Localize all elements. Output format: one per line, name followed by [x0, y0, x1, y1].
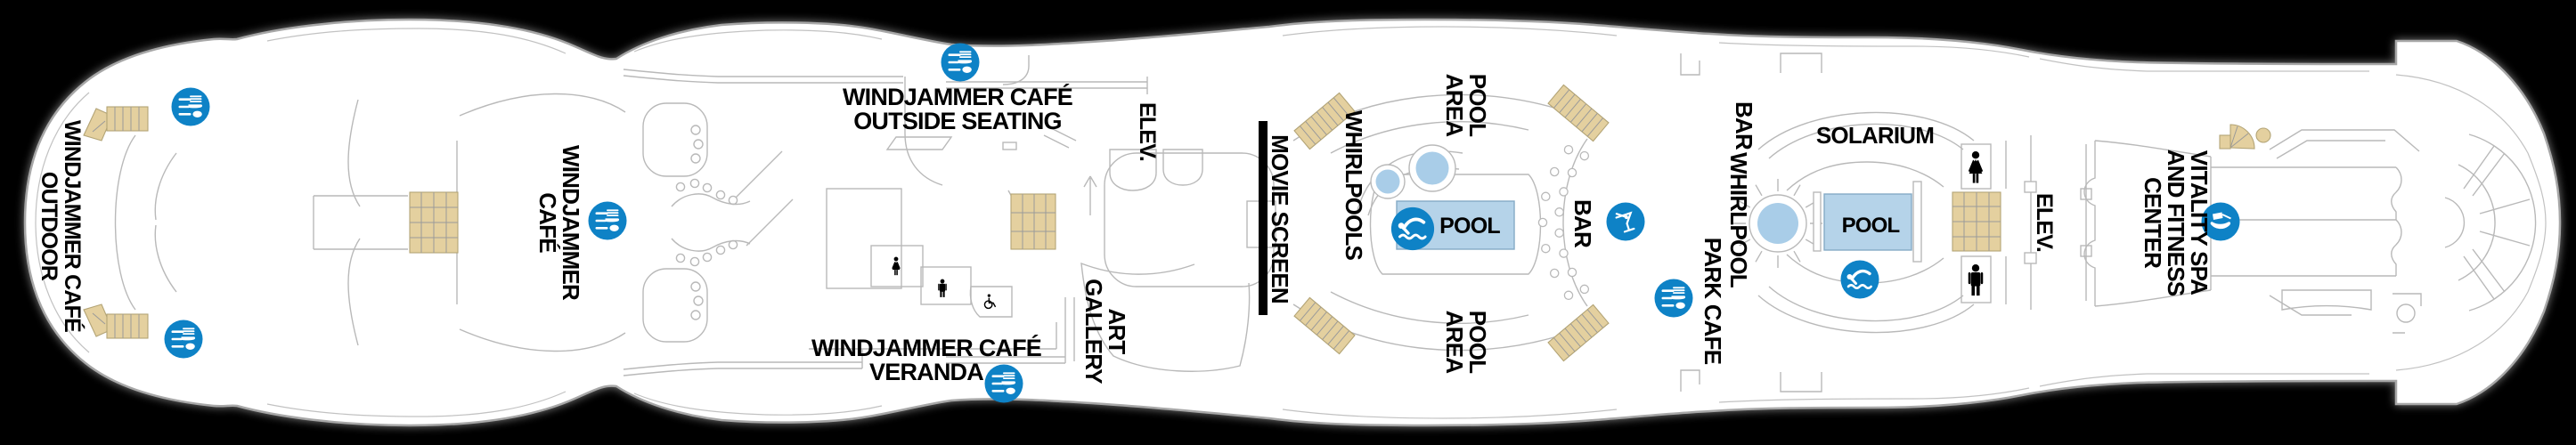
outside-seating-label: WINDJAMMER CAFÉ OUTSIDE SEATING	[843, 83, 1072, 134]
svg-text:ELEV.: ELEV.	[1135, 102, 1160, 161]
svg-text:OUTSIDE SEATING: OUTSIDE SEATING	[853, 108, 1062, 134]
bar-icon[interactable]	[1607, 203, 1645, 241]
movie-screen-bar	[1259, 121, 1268, 315]
svg-text:OUTDOOR: OUTDOOR	[37, 172, 61, 281]
dining-icon[interactable]	[165, 320, 203, 359]
whirlpool-aft-large	[1409, 145, 1455, 191]
dining-icon[interactable]	[985, 365, 1023, 403]
svg-text:AREA: AREA	[1441, 311, 1468, 374]
svg-text:MOVIE SCREEN: MOVIE SCREEN	[1267, 134, 1293, 303]
svg-text:BAR: BAR	[1731, 101, 1757, 150]
pool-icon[interactable]	[1391, 207, 1434, 250]
svg-text:PARK CAFE: PARK CAFE	[1700, 238, 1726, 365]
main-pool-label: POOL	[1439, 214, 1500, 239]
solarium-whirlpool-circle	[1749, 195, 1806, 252]
dining-icon[interactable]	[172, 88, 210, 126]
elev-mid-label: ELEV.	[1135, 102, 1160, 161]
pool-area-top-label: POOL AREA	[1441, 74, 1491, 137]
deck-plan: WINDJAMMER CAFÉ OUTDOOR WINDJAMMER CAFÉ …	[0, 0, 2576, 445]
pool-icon[interactable]	[1841, 261, 1879, 299]
svg-text:WHIRLPOOLS: WHIRLPOOLS	[1341, 110, 1367, 261]
elev-forward-label: ELEV.	[2032, 193, 2057, 252]
solarium-label: SOLARIUM	[1816, 122, 1934, 149]
svg-text:CAFÉ: CAFÉ	[534, 192, 561, 253]
solarium-bar-label: BAR	[1731, 101, 1757, 150]
svg-text:CENTER: CENTER	[2140, 177, 2166, 269]
dining-icon[interactable]	[942, 44, 980, 82]
park-cafe-label: PARK CAFE	[1700, 238, 1726, 365]
svg-text:BAR: BAR	[1569, 199, 1596, 248]
svg-text:WINDJAMMER CAFÉ: WINDJAMMER CAFÉ	[811, 334, 1041, 361]
svg-text:ELEV.: ELEV.	[2032, 193, 2057, 252]
whirlpool-aft-small	[1371, 165, 1405, 198]
stairs-veranda[interactable]	[1011, 194, 1056, 249]
movie-screen-label: MOVIE SCREEN	[1267, 134, 1293, 303]
svg-text:GALLERY: GALLERY	[1080, 279, 1107, 384]
whirlpools-label: WHIRLPOOLS	[1341, 110, 1367, 261]
svg-text:VERANDA: VERANDA	[869, 359, 983, 385]
pool-bar-label: BAR	[1569, 199, 1596, 248]
solarium-pool-label: POOL	[1842, 214, 1900, 238]
dining-icon[interactable]	[1655, 279, 1693, 318]
stairs-windjammer[interactable]	[410, 192, 458, 253]
stairs-solarium[interactable]	[1952, 192, 2001, 251]
svg-text:AREA: AREA	[1441, 74, 1468, 137]
svg-text:WINDJAMMER CAFÉ: WINDJAMMER CAFÉ	[60, 120, 86, 332]
svg-text:WHIRLPOOL: WHIRLPOOL	[1725, 152, 1752, 288]
pool-area-bottom-label: POOL AREA	[1441, 311, 1491, 374]
solarium-whirlpool-label: WHIRLPOOL	[1725, 152, 1752, 288]
svg-text:WINDJAMMER CAFÉ: WINDJAMMER CAFÉ	[843, 83, 1072, 110]
dining-icon[interactable]	[589, 202, 627, 240]
